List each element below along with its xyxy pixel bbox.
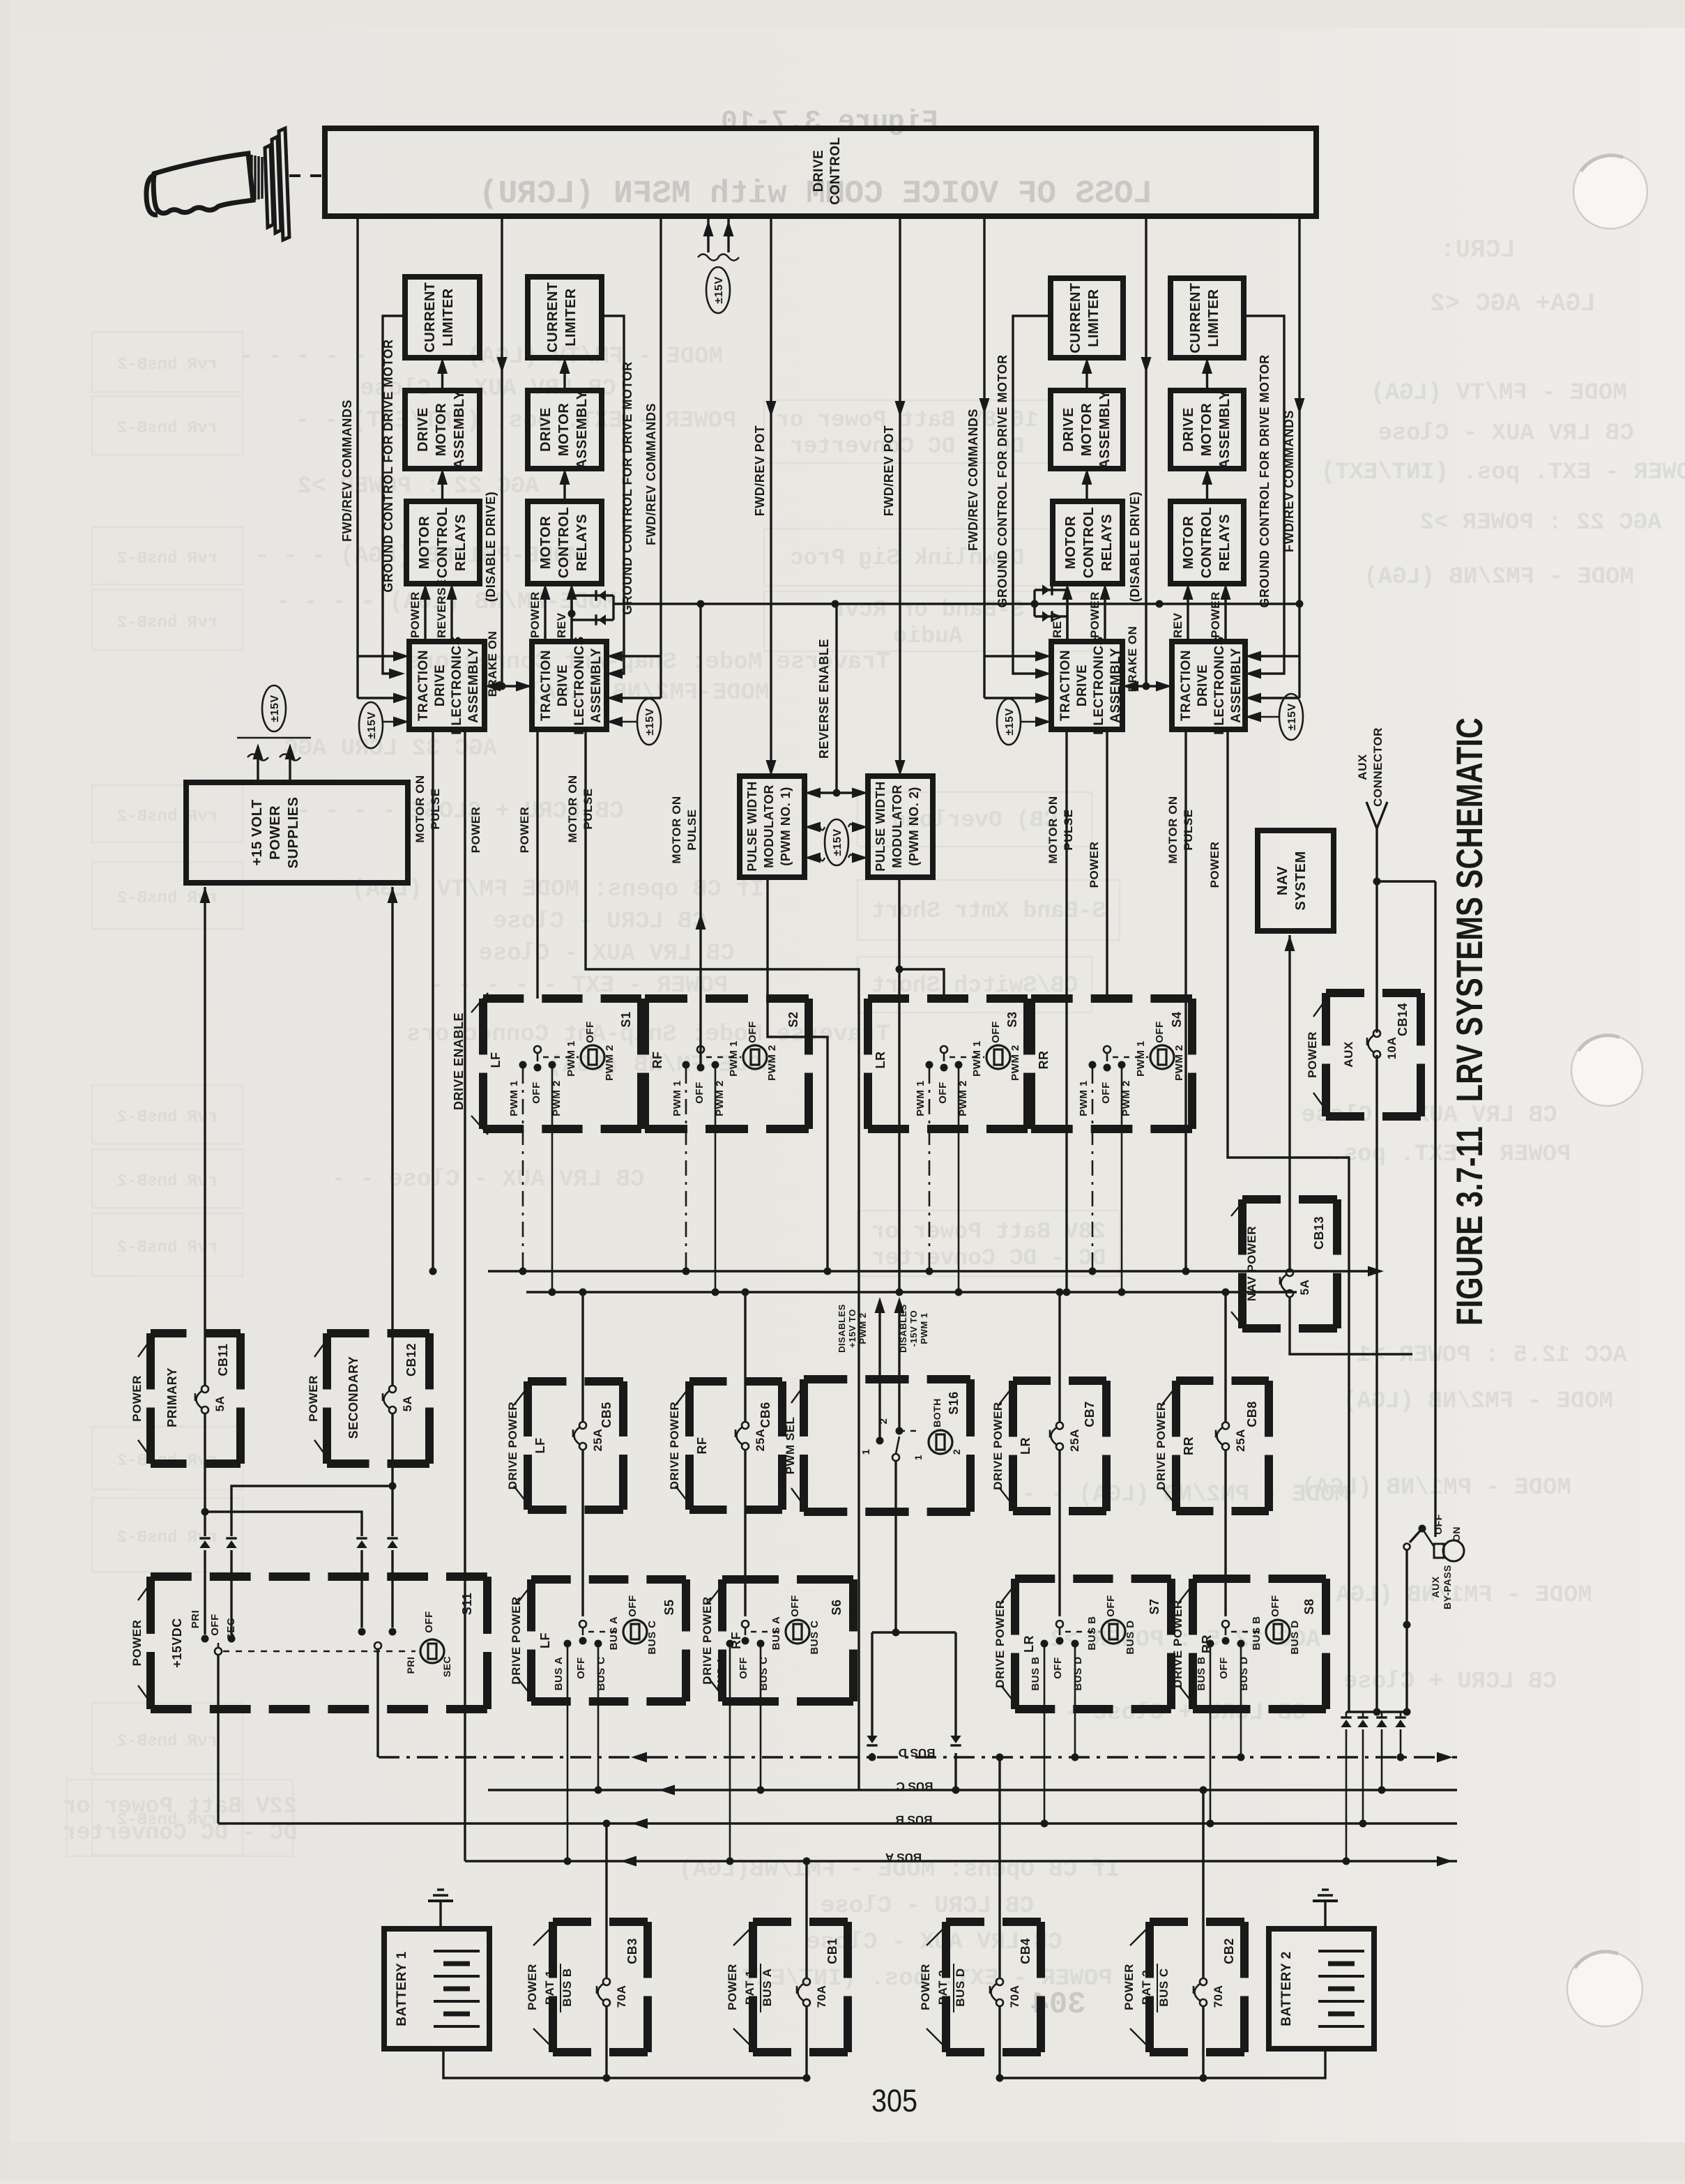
svg-text:PRI: PRI [190,1610,201,1629]
svg-text:S7: S7 [1148,1598,1161,1614]
svg-text:5A: 5A [1298,1280,1311,1296]
svg-text:CURRENTLIMITER: CURRENTLIMITER [1188,282,1221,353]
svg-text:SEC: SEC [225,1618,237,1640]
svg-text:OFF: OFF [747,1021,758,1043]
svg-text:GROUND CONTROL FOR DRIVE MOTOR: GROUND CONTROL FOR DRIVE MOTOR [620,361,634,614]
svg-text:BUS A: BUS A [715,1657,727,1691]
svg-text:DRIVE POWER: DRIVE POWER [510,1596,523,1684]
svg-text:BAT 1: BAT 1 [543,1970,556,2005]
svg-text:BUS B: BUS B [1086,1616,1098,1650]
svg-text:POWER: POWER [528,591,542,638]
svg-text:DRIVE POWER: DRIVE POWER [701,1596,714,1684]
svg-text:DRIVEMOTORASSEMBLY: DRIVEMOTORASSEMBLY [1061,390,1113,469]
svg-text:±15V: ±15V [1004,708,1016,735]
svg-text:PWM 1: PWM 1 [728,1040,740,1077]
svg-text:BUS A: BUS A [761,1969,774,2007]
svg-text:BATTERY 2: BATTERY 2 [1279,1951,1294,2026]
svg-text:SECONDARY: SECONDARY [346,1356,360,1439]
svg-text:POWER: POWER [469,807,482,854]
svg-text:BAT 1: BAT 1 [743,1970,756,2005]
svg-text:DISABLES+15V TOPWM 2: DISABLES+15V TOPWM 2 [837,1304,868,1353]
svg-text:±15V: ±15V [832,828,844,856]
svg-text:BUS A: BUS A [553,1657,565,1691]
svg-text:OFF: OFF [627,1595,639,1617]
svg-text:POWER: POWER [1088,842,1101,888]
svg-text:70A: 70A [815,1985,828,2008]
svg-text:NAV POWER: NAV POWER [1245,1226,1258,1301]
svg-text:S3: S3 [1005,1011,1019,1027]
svg-text:OFF: OFF [937,1082,949,1104]
svg-text:LF: LF [538,1632,552,1648]
svg-text:PWM 1: PWM 1 [915,1080,927,1116]
svg-text:POWER: POWER [1088,591,1101,638]
svg-text:TRACTIONDRIVEELECTRONICSASSEMB: TRACTIONDRIVEELECTRONICSASSEMBLY [539,636,604,735]
svg-text:2: 2 [951,1449,962,1455]
svg-text:CB14: CB14 [1396,1003,1410,1036]
svg-text:S16: S16 [947,1391,961,1415]
svg-text:TRACTIONDRIVEELECTRONICSASSEMB: TRACTIONDRIVEELECTRONICSASSEMBLY [1179,636,1244,735]
svg-text:OFF: OFF [1052,1657,1064,1679]
svg-text:BUS C: BUS C [1157,1968,1171,2006]
svg-text:MOTOR ONPULSE: MOTOR ONPULSE [1166,796,1195,863]
svg-text:25A: 25A [1068,1429,1081,1452]
svg-text:POWER: POWER [1209,591,1222,638]
svg-text:BUS C: BUS C [758,1656,770,1690]
svg-text:BUS D: BUS D [1238,1656,1250,1690]
svg-text:OFF: OFF [1105,1595,1117,1617]
svg-text:DRIVE POWER: DRIVE POWER [668,1402,681,1489]
svg-text:PULSE WIDTHMODULATOR(PWM NO. 1: PULSE WIDTHMODULATOR(PWM NO. 1) [745,781,793,872]
svg-text:DRIVE POWER: DRIVE POWER [506,1402,519,1489]
svg-text:BUS D: BUS D [954,1968,967,2006]
svg-text:70A: 70A [1212,1985,1225,2008]
svg-text:AUXCONNECTOR: AUXCONNECTOR [1356,727,1385,807]
svg-text:1: 1 [860,1449,872,1455]
svg-text:TRACTIONDRIVEELECTRONICSASSEMB: TRACTIONDRIVEELECTRONICSASSEMBLY [1058,636,1123,735]
svg-text:5A: 5A [213,1396,227,1412]
svg-text:S5: S5 [662,1599,676,1615]
svg-text:BUS A: BUS A [608,1616,620,1651]
svg-text:MOTOR ONPULSE: MOTOR ONPULSE [566,775,595,842]
svg-text:PWM 2: PWM 2 [1009,1045,1021,1081]
svg-text:DRIVECONTROL: DRIVECONTROL [811,137,843,204]
svg-text:25A: 25A [1234,1429,1247,1452]
svg-text:1: 1 [913,1455,924,1460]
svg-text:DRIVE POWER: DRIVE POWER [993,1600,1007,1688]
svg-text:POWER: POWER [409,591,422,638]
svg-text:70A: 70A [1008,1985,1021,2008]
svg-text:CB5: CB5 [600,1402,613,1428]
svg-text:DISABLES-15V TOPWM 1: DISABLES-15V TOPWM 1 [898,1304,929,1353]
svg-text:CB3: CB3 [625,1938,639,1964]
svg-text:PWM 1: PWM 1 [1078,1080,1090,1116]
svg-text:BUS B: BUS B [1030,1656,1042,1690]
svg-text:LF: LF [533,1438,547,1454]
svg-text:PWM 1: PWM 1 [971,1040,983,1077]
svg-text:LF: LF [489,1052,503,1068]
svg-text:PWM 1: PWM 1 [671,1080,683,1116]
svg-text:±15V: ±15V [1286,703,1298,730]
svg-text:±15V: ±15V [713,276,725,303]
svg-text:5A: 5A [401,1396,414,1412]
svg-text:BUS D: BUS D [899,1746,936,1759]
svg-text:S8: S8 [1302,1598,1316,1614]
svg-text:OFF: OFF [423,1611,435,1633]
svg-text:PWM 1: PWM 1 [508,1080,520,1116]
svg-text:FWD/REV COMMANDS: FWD/REV COMMANDS [966,409,980,551]
svg-text:BUS B: BUS B [1196,1656,1207,1690]
svg-text:OFF: OFF [738,1657,749,1679]
svg-text:GROUND CONTROL FOR DRIVE MOTOR: GROUND CONTROL FOR DRIVE MOTOR [996,354,1009,607]
svg-text:OFF: OFF [1100,1082,1112,1104]
svg-text:REVERSE: REVERSE [435,579,448,638]
svg-text:DRIVE POWER: DRIVE POWER [1154,1402,1168,1489]
svg-text:OFF: OFF [584,1021,596,1043]
svg-text:25A: 25A [754,1429,767,1452]
svg-text:±15V: ±15V [269,695,281,722]
svg-text:CB12: CB12 [404,1343,418,1377]
svg-text:BUS D: BUS D [1124,1620,1136,1654]
svg-text:POWER: POWER [919,1964,932,2010]
svg-text:+15VDC: +15VDC [170,1618,184,1668]
svg-text:±15V: ±15V [644,708,656,735]
svg-text:RF: RF [650,1052,664,1069]
svg-text:BUS B: BUS B [1251,1616,1263,1650]
svg-text:MOTORCONTROLRELAYS: MOTORCONTROLRELAYS [1181,507,1233,578]
svg-text:OFF: OFF [575,1657,587,1679]
svg-text:POWER: POWER [307,1375,320,1422]
svg-text:CURRENTLIMITER: CURRENTLIMITER [1068,282,1101,353]
svg-text:GROUND CONTROL FOR DRIVE MOTOR: GROUND CONTROL FOR DRIVE MOTOR [381,339,395,592]
svg-text:BUS A: BUS A [885,1851,922,1864]
svg-text:CB11: CB11 [216,1343,230,1376]
svg-text:CB4: CB4 [1019,1938,1032,1964]
svg-text:AUXBY-PASS: AUXBY-PASS [1430,1565,1453,1609]
svg-text:PWM 1: PWM 1 [565,1040,577,1077]
svg-text:BUS D: BUS D [1072,1656,1084,1690]
svg-text:PWM 2: PWM 2 [604,1045,616,1081]
svg-text:OFF: OFF [209,1614,221,1636]
svg-text:S11: S11 [460,1593,474,1616]
svg-text:S4: S4 [1170,1011,1184,1027]
svg-text:POWER: POWER [1208,842,1221,888]
svg-text:CB1: CB1 [825,1938,839,1964]
svg-text:FIGURE 3.7-11 LRV SYSTEMS SC: FIGURE 3.7-11 LRV SYSTEMS SCHEMATIC [1449,718,1490,1326]
svg-text:MOTORCONTROLRELAYS: MOTORCONTROLRELAYS [1063,507,1115,578]
svg-text:305: 305 [871,2083,917,2118]
svg-text:GROUND CONTROL FOR DRIVE MOTOR: GROUND CONTROL FOR DRIVE MOTOR [1258,354,1272,607]
svg-text:CURRENTLIMITER: CURRENTLIMITER [422,282,456,352]
svg-text:BUS B: BUS B [561,1968,574,2006]
svg-text:DRIVE POWER: DRIVE POWER [1171,1600,1184,1688]
svg-text:DRIVEMOTORASSEMBLY: DRIVEMOTORASSEMBLY [415,390,467,469]
svg-text:POWER: POWER [726,1964,739,2010]
svg-text:+15 VOLTPOWERSUPPLIES: +15 VOLTPOWERSUPPLIES [250,797,301,869]
svg-text:LR: LR [874,1052,887,1069]
svg-text:POWER: POWER [1306,1031,1319,1078]
svg-text:FWD/REV COMMANDS: FWD/REV COMMANDS [340,400,354,542]
svg-text:RF: RF [695,1437,709,1455]
svg-text:PRIMARY: PRIMARY [165,1367,179,1427]
svg-text:(DISABLE DRIVE): (DISABLE DRIVE) [1128,492,1142,602]
svg-text:PWM SEL: PWM SEL [784,1417,797,1475]
svg-text:LR: LR [1019,1437,1032,1455]
svg-text:CB13: CB13 [1312,1216,1326,1250]
svg-text:BUS C: BUS C [595,1656,607,1690]
svg-text:BAT 2: BAT 2 [936,1970,950,2005]
svg-text:BOTH: BOTH [931,1398,943,1427]
svg-text:SEC: SEC [441,1656,452,1677]
svg-text:NAVSYSTEM: NAVSYSTEM [1275,851,1309,910]
svg-text:CURRENTLIMITER: CURRENTLIMITER [545,282,579,352]
svg-text:POWER: POWER [130,1620,144,1667]
svg-text:PULSE WIDTHMODULATOR(PWM NO. 2: PULSE WIDTHMODULATOR(PWM NO. 2) [874,781,921,872]
svg-text:OFF: OFF [1218,1657,1230,1679]
svg-text:±15V: ±15V [366,711,378,738]
svg-text:CB7: CB7 [1083,1401,1097,1427]
svg-text:25A: 25A [591,1429,604,1452]
svg-text:DRIVE POWER: DRIVE POWER [991,1402,1005,1489]
svg-text:OFF: OFF [789,1595,801,1617]
svg-text:BUS C: BUS C [646,1620,658,1654]
svg-text:ON: ON [1451,1526,1462,1542]
svg-text:POWER: POWER [518,807,531,854]
svg-text:LR: LR [1022,1635,1036,1653]
svg-text:DRIVEMOTORASSEMBLY: DRIVEMOTORASSEMBLY [1181,390,1233,469]
svg-text:CB6: CB6 [758,1402,772,1428]
svg-text:DRIVEMOTORASSEMBLY: DRIVEMOTORASSEMBLY [538,390,590,469]
svg-text:CB8: CB8 [1245,1401,1259,1427]
svg-text:PRI: PRI [405,1657,416,1674]
svg-text:MOTORCONTROLRELAYS: MOTORCONTROLRELAYS [538,507,590,578]
svg-text:PWM 2: PWM 2 [1173,1045,1185,1081]
svg-text:OFF: OFF [694,1082,706,1104]
svg-text:BAT 2: BAT 2 [1140,1970,1153,2005]
svg-text:MOTOR ONPULSE: MOTOR ONPULSE [1046,796,1075,863]
svg-text:OFF: OFF [1270,1595,1281,1617]
svg-text:REVERSE ENABLE: REVERSE ENABLE [817,639,831,759]
svg-text:OFF: OFF [1433,1514,1444,1535]
svg-text:S6: S6 [830,1599,844,1615]
svg-text:OFF: OFF [990,1021,1002,1043]
svg-text:S1: S1 [619,1011,633,1027]
svg-text:RR: RR [1182,1436,1196,1455]
svg-text:POWER: POWER [526,1964,539,2010]
svg-text:RR: RR [1037,1051,1051,1070]
svg-text:MOTORCONTROLRELAYS: MOTORCONTROLRELAYS [417,507,468,578]
svg-text:CB2: CB2 [1222,1938,1236,1964]
svg-text:S2: S2 [786,1011,800,1027]
svg-text:BUS C: BUS C [897,1780,933,1793]
svg-text:DRIVE ENABLE: DRIVE ENABLE [452,1013,466,1110]
svg-text:MOTOR ONPULSE: MOTOR ONPULSE [670,796,699,863]
svg-text:OFF: OFF [531,1082,542,1104]
svg-text:REV: REV [555,612,568,638]
svg-text:70A: 70A [615,1985,628,2008]
svg-text:REV: REV [1171,612,1184,638]
svg-text:MOTOR ONPULSE: MOTOR ONPULSE [413,775,442,842]
svg-text:(DISABLE DRIVE): (DISABLE DRIVE) [484,492,498,602]
svg-text:AUX: AUX [1342,1041,1355,1068]
svg-text:BUS D: BUS D [1289,1620,1301,1654]
svg-text:10A: 10A [1385,1037,1398,1060]
svg-text:BUS C: BUS C [809,1620,821,1654]
svg-text:BATTERY 1: BATTERY 1 [395,1951,409,2026]
svg-text:BUS A: BUS A [770,1616,782,1651]
svg-text:PWM 2: PWM 2 [766,1045,778,1081]
svg-text:PWM 1: PWM 1 [1135,1040,1147,1077]
svg-text:TRACTIONDRIVEELECTRONICSASSEMB: TRACTIONDRIVEELECTRONICSASSEMBLY [416,636,481,735]
svg-text:BUS B: BUS B [896,1813,933,1826]
svg-text:FWD/REV POT: FWD/REV POT [753,425,767,517]
svg-text:FWD/REV POT: FWD/REV POT [882,425,896,517]
svg-text:FWD/REV COMMANDS: FWD/REV COMMANDS [644,403,658,545]
svg-text:OFF: OFF [1154,1021,1166,1043]
svg-text:POWER: POWER [1122,1964,1136,2010]
svg-text:POWER: POWER [130,1375,144,1422]
